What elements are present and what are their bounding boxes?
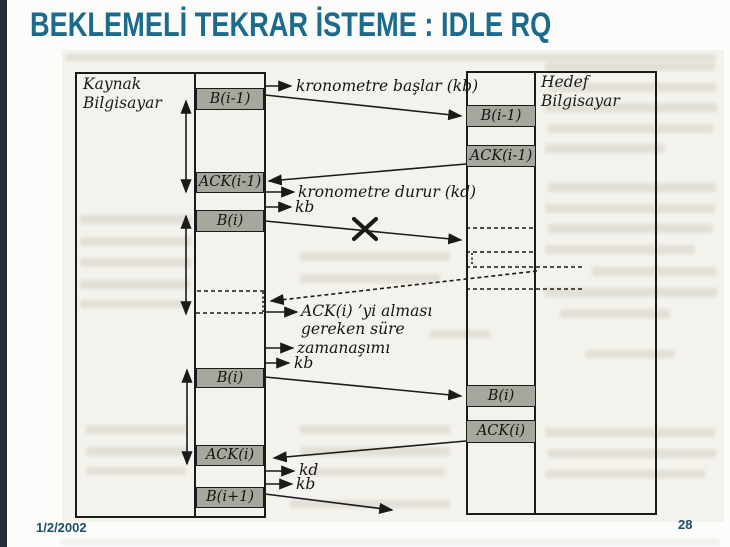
slide-title-text: BEKLEMELİ TEKRAR İSTEME : IDLE RQ — [30, 6, 551, 45]
destination-timeline-divider — [534, 71, 536, 513]
frame-box-source-b-prev: B(i-1) — [196, 88, 264, 110]
scan-smudge — [300, 274, 440, 283]
scan-smudge — [290, 500, 450, 508]
source-computer-label: Kaynak Bilgisayar — [83, 75, 162, 113]
slide-page-number: 28 — [678, 517, 692, 532]
destination-panel-outline — [466, 71, 657, 515]
frame-box-source-ack-prev: ACK(i-1) — [196, 172, 264, 193]
frame-box-dest-b-prev: B(i-1) — [466, 105, 536, 127]
annotation-kb-final: kb — [296, 476, 315, 493]
scan-smudge — [66, 54, 716, 61]
scan-smudge — [545, 62, 715, 71]
source-computer-label-line2: Bilgisayar — [83, 94, 162, 113]
destination-computer-label-line1: Hedef — [541, 73, 620, 92]
slide-date: 1/2/2002 — [36, 520, 87, 535]
slide-edge-strip — [0, 0, 7, 547]
source-computer-label-line1: Kaynak — [83, 75, 162, 94]
annotation-timer-stop: kronometre durur (kd) — [298, 184, 476, 201]
slide-title: BEKLEMELİ TEKRAR İSTEME : IDLE RQ — [30, 6, 682, 45]
annotation-ack-wait-line1: ACK(i) ’yi alması — [301, 303, 432, 320]
destination-computer-label-line2: Bilgisayar — [541, 92, 620, 111]
slide: BEKLEMELİ TEKRAR İSTEME : IDLE RQ Kaynak… — [0, 0, 730, 547]
frame-box-dest-ack-i: ACK(i) — [466, 420, 536, 443]
frame-box-source-b-i: B(i) — [196, 210, 264, 232]
scan-smudge — [60, 539, 720, 545]
scan-smudge — [300, 252, 450, 261]
scan-smudge — [300, 447, 450, 456]
annotation-timer-start: kronometre başlar (kb) — [296, 78, 478, 95]
scan-smudge — [305, 468, 445, 476]
frame-box-dest-b-i: B(i) — [466, 385, 536, 407]
frame-box-source-b-next: B(i+1) — [196, 487, 264, 508]
annotation-kb-after-timeout: kb — [294, 355, 313, 372]
scan-smudge — [300, 425, 450, 434]
frame-box-source-ack-i: ACK(i) — [196, 445, 264, 466]
frame-box-dest-ack-prev: ACK(i-1) — [466, 145, 536, 167]
annotation-ack-wait-line2: gereken süre — [301, 321, 405, 338]
destination-computer-label: Hedef Bilgisayar — [541, 73, 620, 111]
annotation-kb-restart: kb — [295, 199, 314, 216]
frame-box-source-b-i-retx: B(i) — [196, 368, 264, 388]
